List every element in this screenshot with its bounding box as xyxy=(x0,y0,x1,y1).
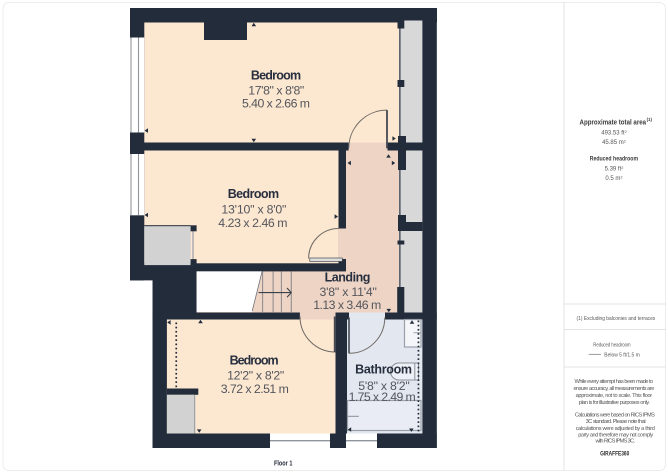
svg-text:plan is for illustrative purpo: plan is for illustrative purposes only. xyxy=(579,400,650,406)
svg-text:4.23 x 2.46 m: 4.23 x 2.46 m xyxy=(218,216,287,230)
svg-text:5.39 ft2: 5.39 ft2 xyxy=(605,165,624,173)
svg-text:GIRAFFE360: GIRAFFE360 xyxy=(600,450,629,457)
svg-text:17'8" x 8'8": 17'8" x 8'8" xyxy=(248,83,304,97)
svg-text:Bedroom: Bedroom xyxy=(251,69,301,83)
svg-text:ensure accuracy, all measureme: ensure accuracy, all measurements are xyxy=(573,386,654,392)
svg-text:Reduced headroom: Reduced headroom xyxy=(593,342,630,348)
svg-text:Approximate total area: Approximate total area xyxy=(580,117,647,126)
svg-text:Below 5 ft/1.5 m: Below 5 ft/1.5 m xyxy=(604,353,640,359)
svg-text:While every attempt has been m: While every attempt has been made to xyxy=(575,379,654,385)
svg-text:Bedroom: Bedroom xyxy=(230,354,279,368)
svg-text:(1) Excluding balconies and te: (1) Excluding balconies and terraces xyxy=(577,316,656,322)
svg-text:approximate, not to scale. Thi: approximate, not to scale. This floor xyxy=(576,393,653,399)
svg-text:with RICS IPMS 3C.: with RICS IPMS 3C. xyxy=(595,439,636,445)
svg-text:1.13 x 3.46 m: 1.13 x 3.46 m xyxy=(313,298,381,312)
svg-text:calculations were adjusted by: calculations were adjusted by a third xyxy=(576,426,655,432)
svg-text:party and therefore may not co: party and therefore may not comply xyxy=(578,432,653,438)
svg-text:3.72 x 2.51 m: 3.72 x 2.51 m xyxy=(221,382,289,396)
svg-text:0.5 m2: 0.5 m2 xyxy=(605,175,622,183)
svg-text:Bathroom: Bathroom xyxy=(355,363,412,377)
svg-text:(1): (1) xyxy=(647,117,653,122)
svg-text:5.40 x 2.66 m: 5.40 x 2.66 m xyxy=(242,97,310,111)
svg-text:493.53 ft2: 493.53 ft2 xyxy=(601,129,627,137)
svg-text:3C standard. Please note that: 3C standard. Please note that xyxy=(586,419,647,425)
svg-text:12'2" x 8'2": 12'2" x 8'2" xyxy=(227,369,284,383)
svg-text:45.85 m2: 45.85 m2 xyxy=(602,139,626,147)
svg-text:13'10" x 8'0": 13'10" x 8'0" xyxy=(221,203,286,217)
svg-text:Floor 1: Floor 1 xyxy=(274,458,293,467)
svg-text:Reduced headroom: Reduced headroom xyxy=(590,156,639,163)
svg-text:Landing: Landing xyxy=(325,270,371,284)
svg-text:Calculations were based on RIC: Calculations were based on RICS IPMS xyxy=(575,413,655,419)
svg-text:Bedroom: Bedroom xyxy=(228,187,279,201)
svg-text:1.75 x 2.49 m: 1.75 x 2.49 m xyxy=(349,390,416,404)
